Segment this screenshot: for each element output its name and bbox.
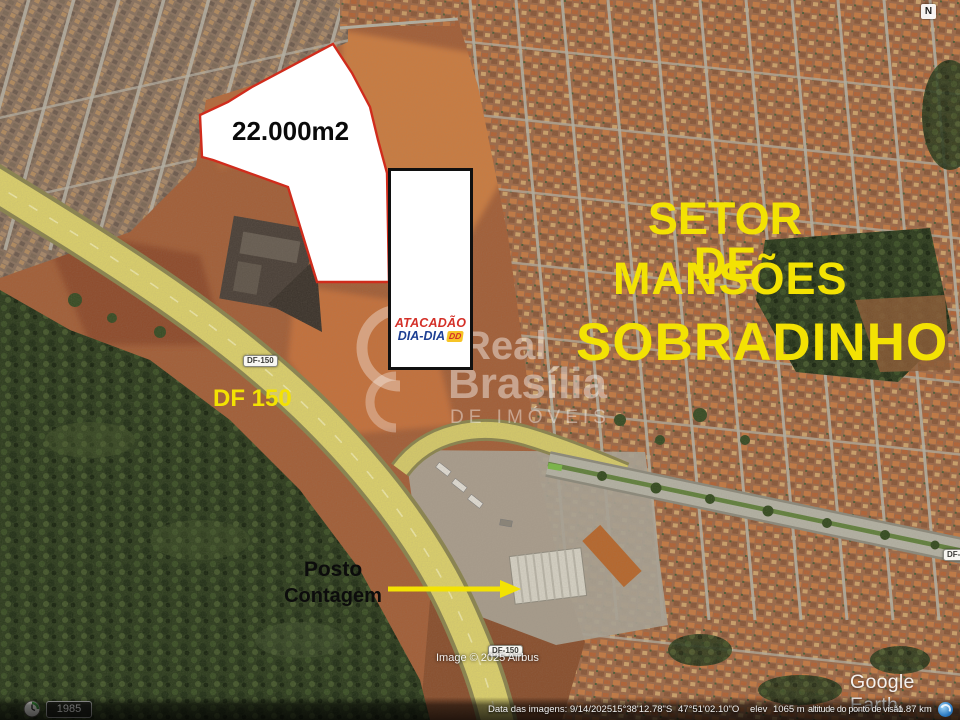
setor-label-line2: MANSÕES [613,256,841,301]
logo-badge: DD [446,331,464,342]
plot-area-label: 22.000m2 [232,116,342,147]
view-altitude-value: 1.87 km [898,704,932,715]
atacadao-dia-dia-logo: ATACADÃO DIA-DIA DD [391,317,470,343]
logo-name-bottom: DIA-DIA [398,330,445,343]
road-shield-df4: DF-4 [943,549,960,561]
store-location-box: ATACADÃO DIA-DIA DD [388,168,473,370]
view-altitude-label: altitude do ponto de visão [808,704,903,714]
status-bar: Data das imagens: 9/14/2025 15°38'12.78"… [0,697,960,720]
road-shield-df150-upper: DF-150 [243,355,278,367]
posto-label-line1: Posto [295,559,371,580]
google-earth-map-view[interactable]: Real Brasília DE IMÓVEIS 22.000m2 ATACAD… [0,0,960,720]
setor-label-line3: SOBRADINHO [576,316,940,369]
latitude-readout: 15°38'12.78"S [612,704,672,715]
elevation-value: 1065 m [773,704,805,715]
compass-north-icon[interactable]: N [921,4,936,19]
elevation-label: elev [750,704,767,715]
imagery-attribution: Image © 2025 Airbus [436,652,539,664]
earth-navigation-icon[interactable] [938,702,953,717]
longitude-readout: 47°51'02.10"O [678,704,739,715]
posto-label-line2: Contagem [284,586,382,606]
imagery-date: Data das imagens: 9/14/2025 [488,704,612,715]
highway-label: DF 150 [213,387,292,411]
logo-name-top: ATACADÃO [391,317,470,330]
